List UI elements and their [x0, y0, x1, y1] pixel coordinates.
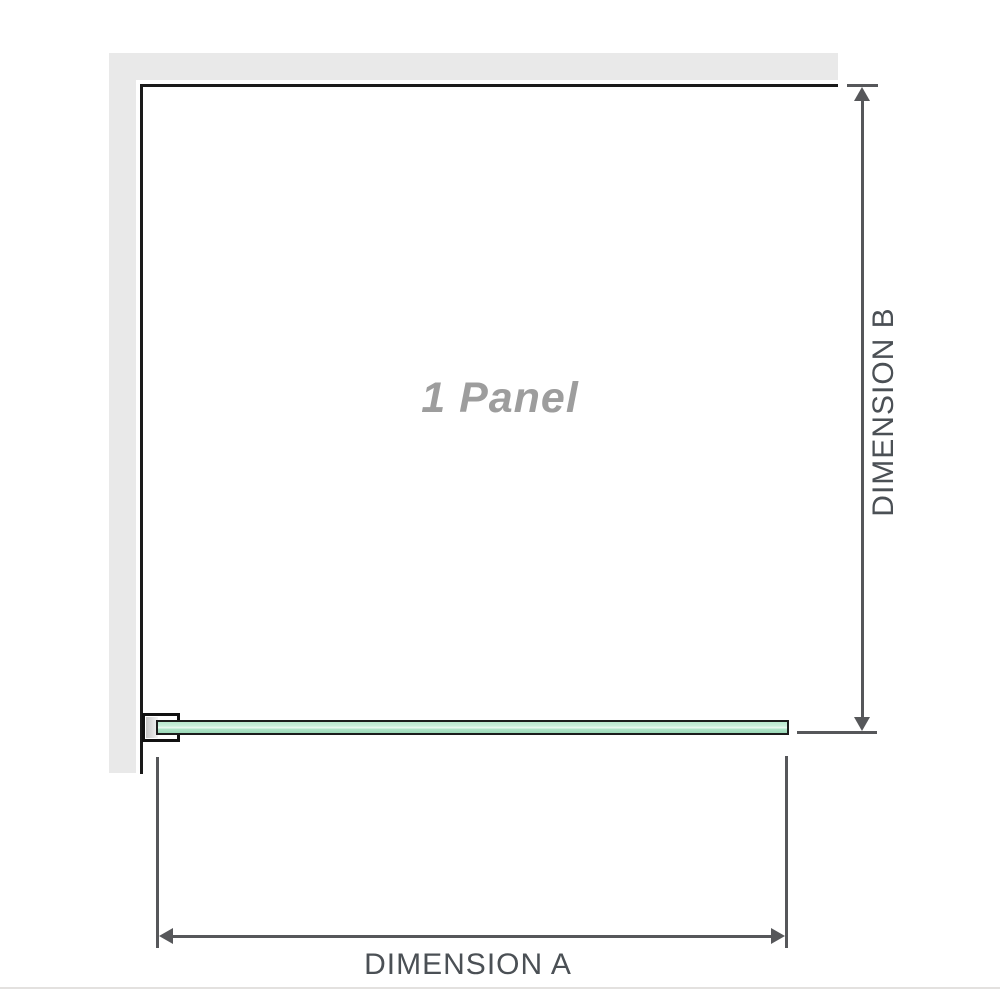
arrow-left-icon	[159, 928, 173, 944]
dimension-b-label: DIMENSION B	[867, 292, 901, 532]
page-divider	[0, 987, 1000, 989]
dimension-a-label: DIMENSION A	[336, 948, 600, 982]
dimension-a-line	[170, 935, 775, 938]
panel-left-edge	[140, 84, 143, 774]
dimension-a-left-extension	[156, 757, 159, 948]
dimension-b-line	[861, 98, 864, 720]
glass-panel	[156, 720, 789, 735]
diagram-canvas: 1 Panel DIMENSION B DIMENSION A	[0, 0, 1000, 1000]
wall-top-strip	[109, 53, 838, 80]
panel-top-edge	[140, 84, 838, 87]
dimension-a-right-extension	[785, 756, 788, 948]
arrow-down-icon	[854, 717, 870, 731]
panel-count-label: 1 Panel	[330, 368, 670, 428]
dimension-b-bottom-tick	[797, 731, 877, 734]
wall-left-strip	[109, 53, 136, 773]
arrow-right-icon	[771, 928, 785, 944]
arrow-up-icon	[854, 87, 870, 101]
